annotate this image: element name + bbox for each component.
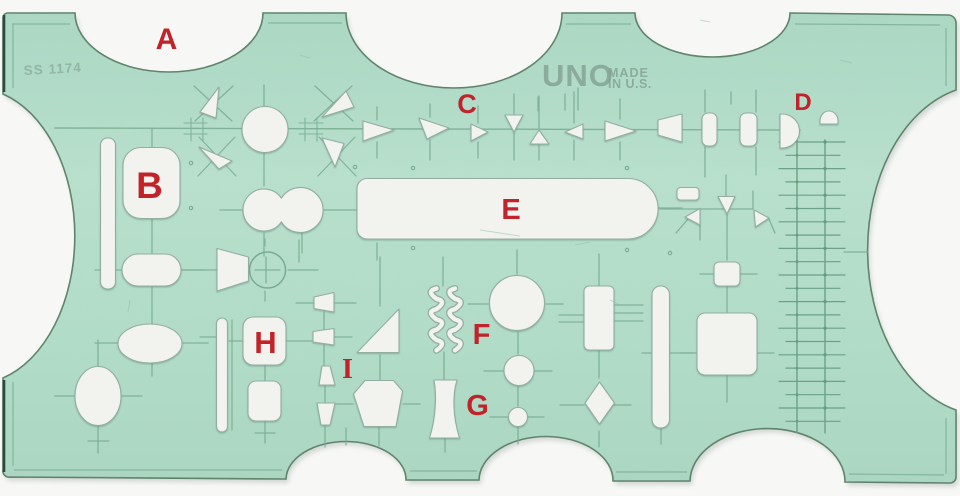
svg-text:C: C <box>457 89 477 119</box>
svg-text:UNO: UNO <box>542 58 614 93</box>
svg-text:IN U.S.: IN U.S. <box>608 77 652 91</box>
svg-text:F: F <box>473 319 491 351</box>
svg-text:E: E <box>501 194 520 226</box>
svg-text:H: H <box>254 325 276 360</box>
svg-text:I: I <box>342 354 353 385</box>
svg-text:SS 1174: SS 1174 <box>23 60 82 78</box>
svg-text:D: D <box>794 89 811 116</box>
svg-text:B: B <box>136 165 163 206</box>
svg-text:A: A <box>156 23 178 56</box>
svg-text:G: G <box>466 390 489 422</box>
